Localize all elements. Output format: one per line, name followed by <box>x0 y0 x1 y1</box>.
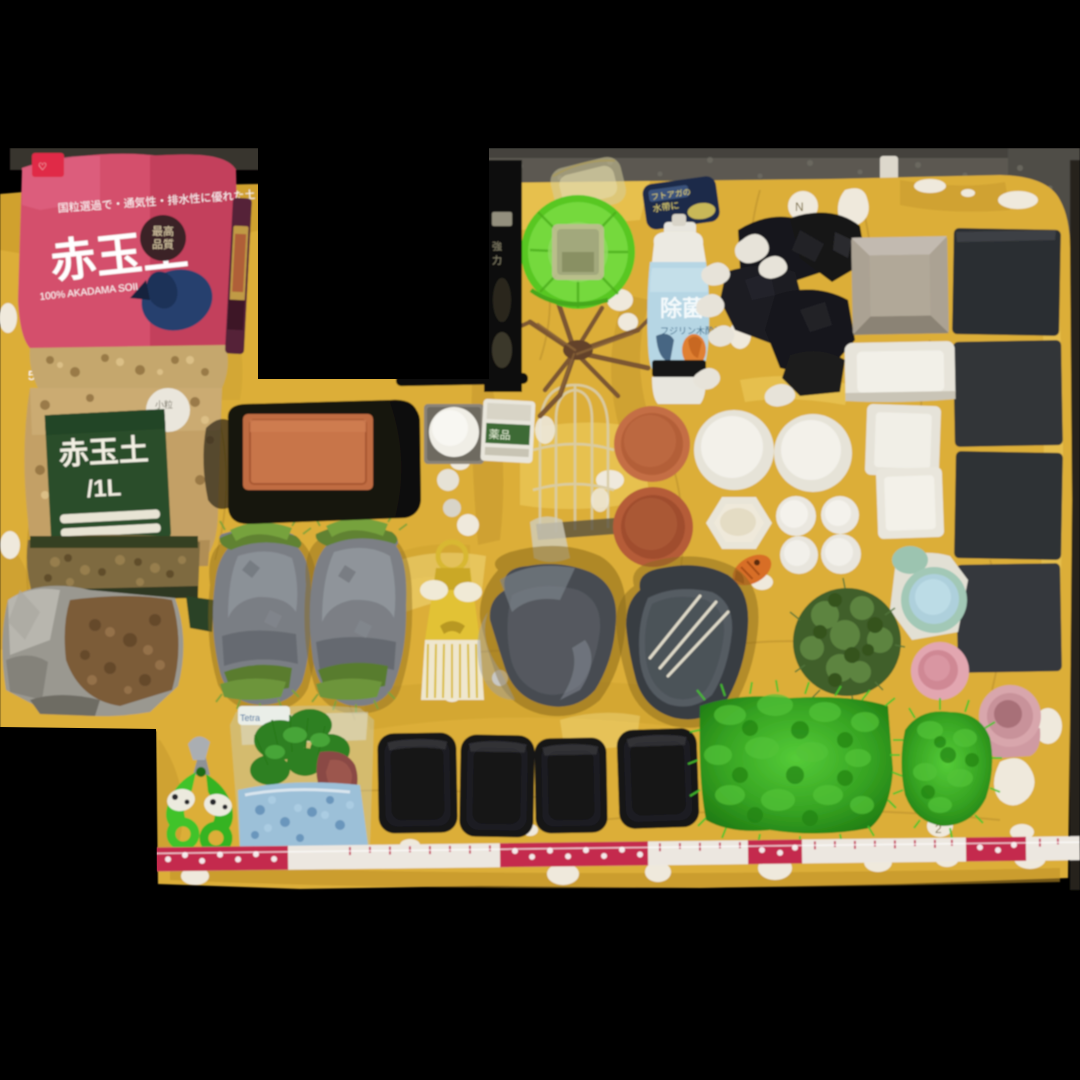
svg-text:N: N <box>795 200 804 214</box>
svg-text:Tetra: Tetra <box>240 713 260 723</box>
svg-text:/1L: /1L <box>86 474 122 503</box>
svg-text:赤玉土: 赤玉土 <box>58 434 150 472</box>
svg-text:薬品: 薬品 <box>488 428 511 442</box>
svg-text:最高: 最高 <box>152 224 174 238</box>
svg-text:♡: ♡ <box>38 162 47 173</box>
svg-text:品質: 品質 <box>152 237 174 251</box>
svg-text:小粒: 小粒 <box>155 399 173 410</box>
